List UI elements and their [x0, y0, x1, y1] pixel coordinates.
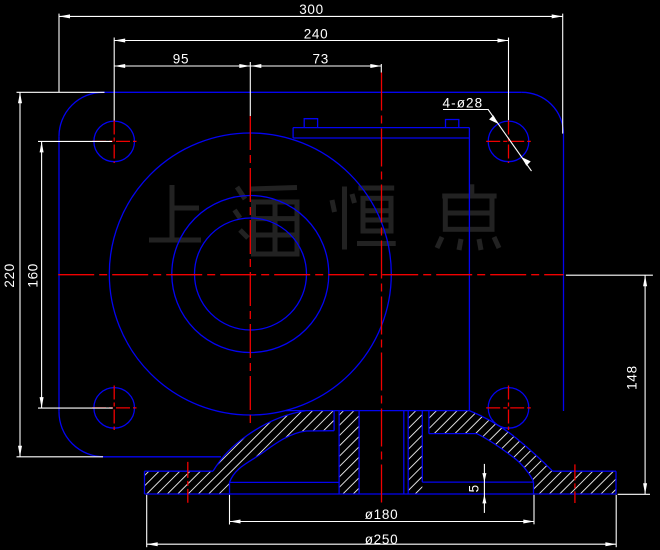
svg-text:160: 160: [25, 263, 40, 288]
svg-text:240: 240: [304, 26, 329, 41]
svg-text:95: 95: [173, 52, 189, 67]
svg-text:148: 148: [625, 365, 640, 390]
svg-text:220: 220: [2, 263, 17, 288]
svg-text:ø180: ø180: [365, 507, 399, 522]
svg-text:73: 73: [312, 52, 328, 67]
svg-text:300: 300: [299, 2, 324, 17]
svg-text:5: 5: [467, 484, 482, 492]
svg-text:4-ø28: 4-ø28: [443, 96, 484, 111]
svg-text:ø250: ø250: [365, 532, 399, 547]
